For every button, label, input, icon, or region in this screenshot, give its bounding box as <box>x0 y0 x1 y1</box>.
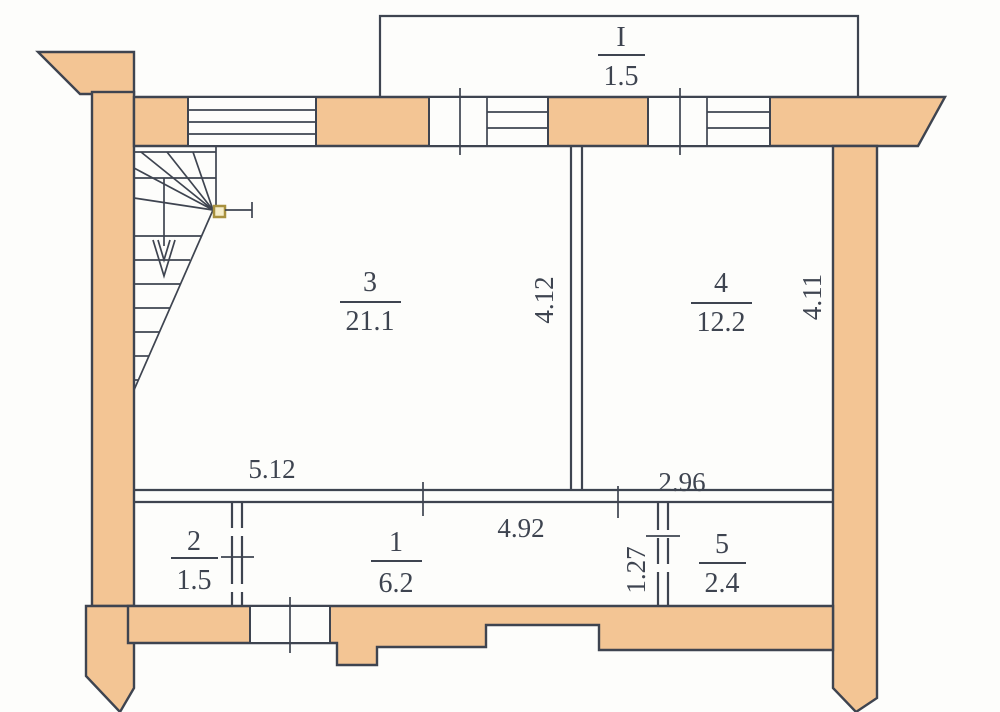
dimension-bottom-left: 5.12 <box>248 454 295 484</box>
room5-number: 5 <box>715 529 729 560</box>
room3-area: 21.1 <box>346 306 395 337</box>
room2-area: 1.5 <box>177 565 212 596</box>
room5-area: 2.4 <box>705 568 740 599</box>
dimension-partition: 1.27 <box>621 546 651 593</box>
room4-number: 4 <box>714 268 728 299</box>
balcony-area: 1.5 <box>604 61 639 92</box>
room4-area: 12.2 <box>697 307 746 338</box>
dimension-center-wall: 4.12 <box>529 276 559 323</box>
window-middle-frame <box>429 97 548 146</box>
floor-plan-page: I 1.5 3 21.1 4 12.2 2 1.5 1 6.2 5 2.4 5.… <box>0 0 1000 712</box>
stair-marker-square <box>214 206 225 217</box>
room1-number: 1 <box>389 527 403 558</box>
window-right-frame <box>648 97 770 146</box>
room3-number: 3 <box>363 267 377 298</box>
room2-number: 2 <box>187 526 201 557</box>
right-wall <box>833 146 877 712</box>
window-middle <box>429 88 548 155</box>
left-wall <box>92 92 134 606</box>
window-right <box>648 88 770 155</box>
dimension-bottom-right: 2.96 <box>658 467 705 497</box>
dimension-bottom-center: 4.92 <box>497 513 544 543</box>
room1-area: 6.2 <box>379 568 414 599</box>
window-left <box>188 97 316 146</box>
balcony-number: I <box>616 22 625 53</box>
dimension-right-wall: 4.11 <box>797 274 827 320</box>
floor-plan-drawing: I 1.5 3 21.1 4 12.2 2 1.5 1 6.2 5 2.4 5.… <box>0 0 1000 712</box>
